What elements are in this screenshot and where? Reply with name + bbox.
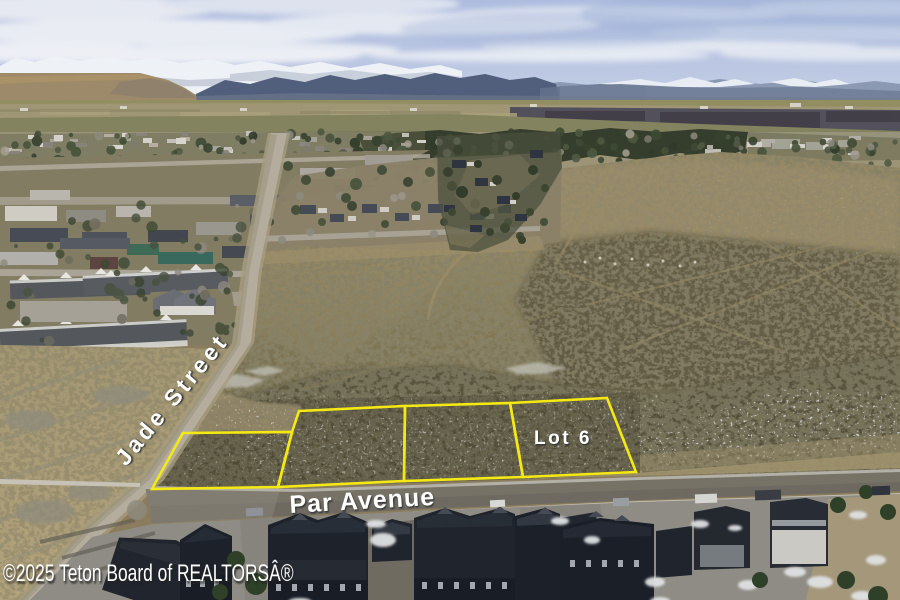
svg-text:Lot 6: Lot 6 [534,428,592,449]
svg-text:©2025 Teton Board of REALTORSÂ: ©2025 Teton Board of REALTORSÂ® [3,560,294,586]
